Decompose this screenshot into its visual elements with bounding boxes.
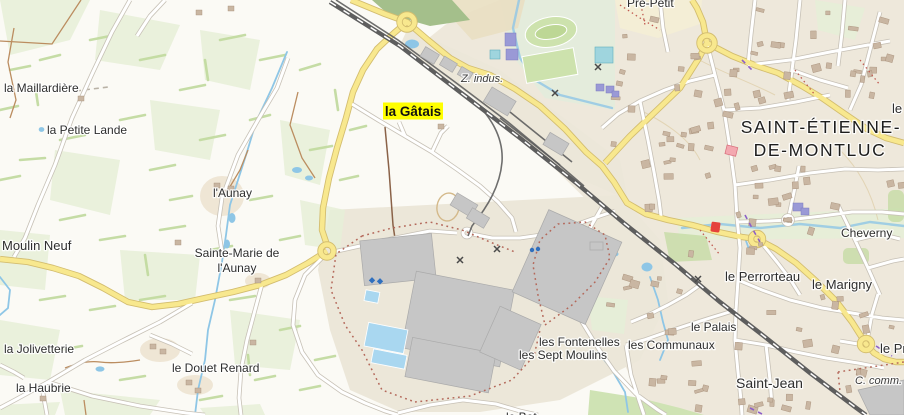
town-building [724,89,731,96]
town-building [753,195,758,199]
place-label-les-communaux: les Communaux [628,338,715,352]
town-building [826,63,832,69]
town-building [678,66,684,71]
rural-building [196,10,202,15]
town-label-line2: DE-MONTLUC [754,140,887,160]
town-building [831,345,840,354]
town-building [659,142,665,146]
place-label-c-comm: C. comm. [855,375,902,387]
town-building [627,54,635,61]
place-label-la-jolivetterie: la Jolivetterie [4,342,74,356]
town-building [774,166,781,172]
town-building [771,41,781,48]
town-building [611,141,617,147]
place-label-saint-jean: Saint-Jean [736,375,803,391]
town-building [622,34,627,38]
place-label-l-aunay: l'Aunay [213,186,252,200]
town-building [691,53,699,59]
town-building [695,404,702,412]
town-building [707,122,714,129]
town-building [837,296,844,301]
place-label-les-sept-moulins: les Sept Moulins [519,348,607,362]
rural-building [160,349,166,354]
place-label-pre-petit: Pré-Petit [627,0,674,10]
place-label-la-gatais-highlighted: la Gâtais [385,104,441,119]
town-building [803,339,813,348]
rural-building [250,340,256,345]
town-building [664,173,674,179]
map-canvas[interactable]: la Maillardière la Petite Lande l'Aunay … [0,0,904,415]
pharmacy-poi [710,221,720,232]
place-label-la-petite-lande: la Petite Lande [47,123,127,137]
town-building [681,132,687,137]
town-building [657,276,661,280]
pool-building [595,47,613,63]
town-building [661,375,668,380]
place-label-le-perrorteau: le Perrorteau [725,269,800,284]
place-label-la-haubrie: la Haubrie [16,381,71,395]
town-building [650,204,655,209]
town-building [826,11,830,15]
rural-building [78,96,84,101]
rural-building [186,380,192,385]
town-building [803,177,810,185]
town-building [767,310,776,314]
rural-building [255,278,261,283]
rural-building [175,240,181,245]
place-label-le-bot-clipped: le Bot [506,410,537,415]
town-building [730,69,738,77]
town-building [860,76,865,83]
rural-building [40,396,46,401]
place-label-sainte-marie-2: l'Aunay [218,261,257,275]
town-label-line1: SAINT-ÉTIENNE- [741,117,901,137]
town-building [674,84,680,91]
town-building [758,242,763,246]
town-building [850,71,856,77]
town-building [688,380,696,385]
place-label-le-marigny: le Marigny [812,277,872,292]
search-result-highlight: la Gâtais [383,103,443,120]
town-building [641,159,651,168]
town-building [670,158,676,162]
town-building [735,342,743,350]
town-building [832,301,839,310]
place-label-le-pr-clipped: le Pr [880,341,904,356]
town-building [869,92,875,99]
town-building [898,182,904,189]
place-label-le-douet-renard: le Douet Renard [172,361,259,375]
town-building [738,398,745,405]
place-label-sainte-marie-1: Sainte-Marie de [195,246,280,260]
town-building [668,328,676,335]
town-building [845,90,850,97]
town-building [786,394,792,401]
town-building [783,72,790,80]
rural-building [195,388,201,393]
town-building [846,385,852,393]
rural-building [150,344,156,349]
town-building [694,90,702,98]
map-viewport[interactable]: la Maillardière la Petite Lande l'Aunay … [0,0,904,415]
town-building [862,325,870,334]
town-building [755,183,763,188]
town-building [801,166,806,172]
place-label-le-clipped: le [892,101,902,116]
place-label-moulin-neuf: Moulin Neuf [2,238,72,253]
town-building [606,302,615,307]
place-label-le-palais: le Palais [691,320,736,334]
town-building [616,81,623,87]
town-building [688,143,694,151]
town-building [746,248,754,255]
place-label-z-indus: Z. indus. [460,73,503,85]
town-building [811,31,817,39]
rural-building [438,124,444,129]
town-building [887,180,895,188]
town-building [628,106,635,113]
place-label-les-fontenelles: les Fontenelles [539,335,620,349]
town-building [667,137,674,142]
place-label-cheverny: Cheverny [841,226,892,240]
town-building [768,198,779,206]
town-building [767,398,772,402]
town-building [792,182,798,189]
rural-building [228,6,234,11]
town-building [688,250,694,257]
town-building [805,401,810,409]
town-building [649,378,656,386]
town-building [692,361,702,367]
town-building [753,90,761,98]
place-label-la-maillardiere: la Maillardière [4,81,79,95]
town-building [647,313,654,319]
